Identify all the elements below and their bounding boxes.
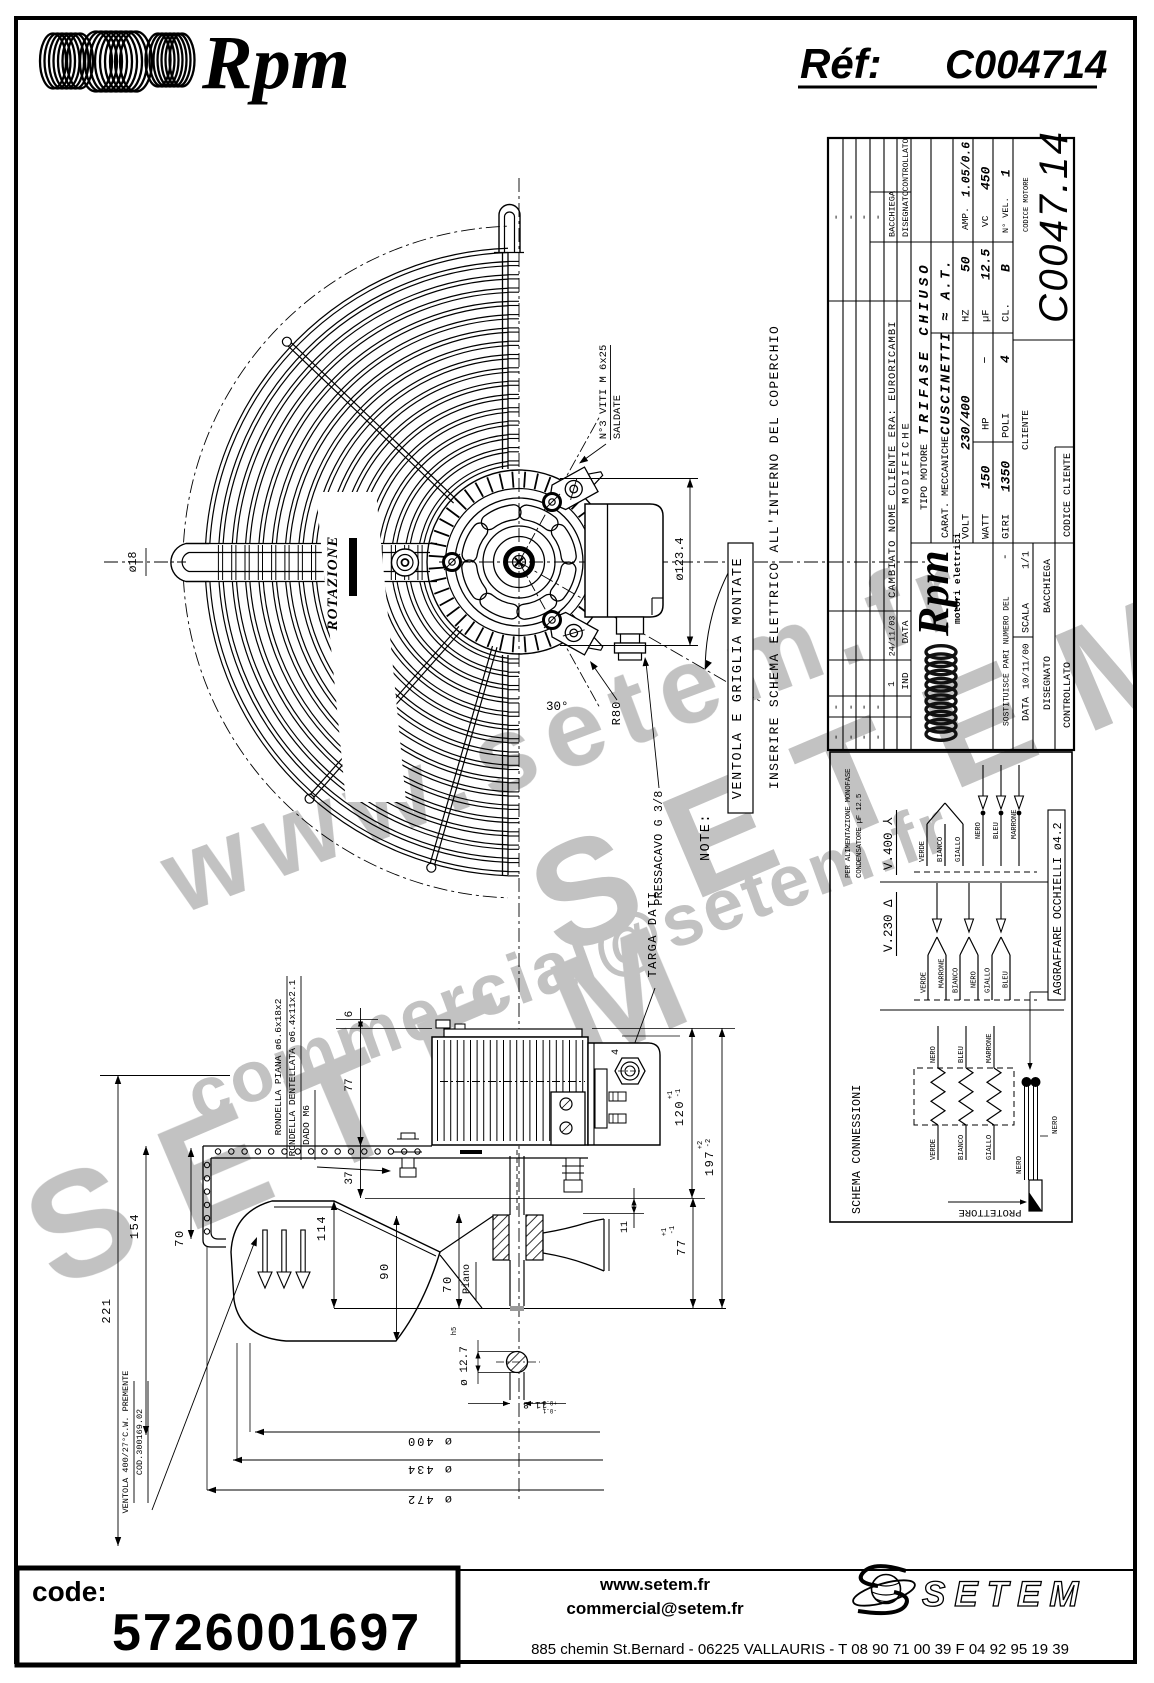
svg-text:1: 1	[999, 169, 1014, 177]
svg-text:30°: 30°	[546, 700, 569, 714]
svg-text:-1: -1	[669, 1226, 677, 1234]
svg-text:GIRI: GIRI	[1001, 514, 1013, 539]
svg-text:NERO: NERO	[1052, 1115, 1060, 1134]
svg-text:NERO: NERO	[1016, 1155, 1024, 1174]
svg-text:VC: VC	[980, 215, 991, 227]
svg-text:NOTE:: NOTE:	[699, 813, 714, 861]
svg-text:NERO: NERO	[930, 1046, 938, 1063]
svg-text:BIANCO: BIANCO	[958, 1135, 966, 1160]
svg-text:MODIFICHE: MODIFICHE	[901, 420, 913, 504]
svg-text:-: -	[873, 704, 885, 711]
svg-text:77: 77	[675, 1238, 689, 1255]
svg-text:BACCHIEGA: BACCHIEGA	[888, 190, 898, 237]
svg-text:CODICE MOTORE: CODICE MOTORE	[1023, 177, 1031, 232]
svg-text:-: -	[1000, 553, 1012, 560]
svg-text:PER ALIMENTAZIONE MONOFASE: PER ALIMENTAZIONE MONOFASE	[845, 768, 853, 878]
svg-text:+2: +2	[697, 1141, 705, 1149]
svg-text:450: 450	[979, 166, 994, 190]
svg-text:-: -	[831, 214, 843, 221]
svg-text:-: -	[831, 704, 843, 711]
svg-text:Réf:: Réf:	[800, 40, 882, 87]
svg-text:11: 11	[620, 1221, 631, 1233]
svg-text:DADO M6: DADO M6	[301, 1105, 312, 1145]
svg-text:BLEU: BLEU	[958, 1046, 966, 1063]
svg-text:Piano: Piano	[461, 1264, 473, 1294]
svg-text:GIALLO: GIALLO	[986, 1135, 994, 1160]
svg-text:IND: IND	[900, 672, 911, 689]
svg-text:-: -	[846, 214, 858, 221]
svg-text:NERO: NERO	[971, 971, 979, 988]
svg-text:221: 221	[100, 1297, 114, 1323]
svg-text:CONTROLLATO: CONTROLLATO	[1063, 662, 1074, 728]
svg-text:WATT: WATT	[981, 514, 993, 539]
svg-text:HZ: HZ	[961, 309, 973, 322]
svg-text:AMP.: AMP.	[960, 207, 971, 230]
svg-text:4: 4	[611, 1049, 622, 1055]
svg-text:commercial@setem.fr: commercial@setem.fr	[566, 1599, 744, 1618]
svg-text:B: B	[999, 264, 1014, 272]
svg-text:1.05/0.6: 1.05/0.6	[961, 142, 974, 197]
svg-text:PROTETTORE: PROTETTORE	[958, 1206, 1021, 1218]
svg-text:CARAT. MECCANICHE: CARAT. MECCANICHE	[941, 436, 952, 538]
svg-text:BIANCO: BIANCO	[937, 837, 945, 862]
svg-text:-0.1: -0.1	[542, 1407, 557, 1414]
svg-text:1/1: 1/1	[1021, 551, 1033, 569]
svg-text:ø 400: ø 400	[406, 1434, 452, 1448]
svg-text:885 chemin St.Bernard - 0622: 885 chemin St.Bernard - 06225 VALLAURIS …	[531, 1641, 1069, 1658]
svg-text:SOSTITUISCE PARI NUMERO DEL: SOSTITUISCE PARI NUMERO DEL	[1003, 596, 1012, 726]
svg-text:code:: code:	[32, 1576, 107, 1607]
svg-text:MARRONE: MARRONE	[939, 959, 947, 988]
svg-text:1: 1	[887, 681, 897, 686]
svg-text:70: 70	[441, 1275, 455, 1292]
svg-text:GIALLO: GIALLO	[985, 968, 993, 993]
svg-text:www.setem.fr: www.setem.fr	[599, 1575, 710, 1594]
svg-text:5726001697: 5726001697	[112, 1604, 421, 1662]
svg-text:ø 434: ø 434	[406, 1462, 452, 1476]
svg-text:CLIENTE: CLIENTE	[1020, 410, 1031, 450]
svg-text:10/11/00: 10/11/00	[1021, 643, 1032, 689]
svg-text:12.5: 12.5	[979, 249, 994, 280]
svg-text:+0.1: +0.1	[542, 1399, 557, 1406]
svg-text:70: 70	[173, 1229, 187, 1246]
svg-text:+1: +1	[661, 1228, 669, 1236]
svg-text:ROTAZIONE: ROTAZIONE	[325, 536, 341, 632]
svg-text:CAMBIATO NOME CLIENTE ERA: EUR: CAMBIATO NOME CLIENTE ERA: EURORICAMBI	[887, 321, 899, 598]
svg-text:-: -	[873, 214, 885, 221]
svg-text:ø 472: ø 472	[406, 1492, 452, 1506]
svg-text:197: 197	[703, 1150, 717, 1176]
svg-text:-: -	[846, 704, 858, 711]
svg-text:SCALA: SCALA	[1022, 603, 1033, 633]
svg-text:-1: -1	[675, 1089, 683, 1097]
svg-text:SCHEMA CONNESSIONI: SCHEMA CONNESSIONI	[851, 1084, 864, 1214]
svg-text:RONDELLA DENTELLATA ø6.4x11x2.: RONDELLA DENTELLATA ø6.4x11x2.1	[287, 979, 298, 1156]
svg-text:–: –	[977, 356, 992, 364]
svg-text:154: 154	[128, 1213, 142, 1239]
svg-text:37: 37	[344, 1171, 356, 1184]
svg-text:ø 12.7: ø 12.7	[459, 1346, 471, 1386]
svg-text:CONTROLLATO: CONTROLLATO	[902, 138, 911, 191]
svg-text:24/11/03: 24/11/03	[888, 616, 898, 657]
svg-text:V.400 ⅄: V.400 ⅄	[882, 817, 896, 870]
svg-text:V.230 Δ: V.230 Δ	[882, 899, 896, 952]
svg-text:-2: -2	[705, 1139, 713, 1147]
svg-text:PRESSACAVO G 3/8: PRESSACAVO G 3/8	[653, 790, 666, 905]
svg-text:RONDELLA PIANA ø6.6x18x2: RONDELLA PIANA ø6.6x18x2	[273, 998, 284, 1135]
svg-text:POLI: POLI	[1001, 413, 1013, 438]
svg-text:motori elettrici: motori elettrici	[952, 532, 963, 624]
svg-text:GIALLO: GIALLO	[955, 837, 963, 862]
svg-text:-: -	[859, 704, 871, 711]
svg-text:TRIFASE CHIUSO: TRIFASE CHIUSO	[917, 261, 933, 435]
svg-text:4: 4	[998, 355, 1013, 363]
svg-text:CL.: CL.	[1001, 303, 1013, 322]
svg-text:-: -	[831, 734, 843, 741]
svg-text:Rpm: Rpm	[201, 21, 350, 105]
svg-text:VERDE: VERDE	[921, 972, 929, 993]
svg-text:C004714: C004714	[945, 43, 1107, 87]
svg-text:MARRONE: MARRONE	[1011, 810, 1019, 839]
svg-text:AGGRAFFARE OCCHIELLI ø4.2: AGGRAFFARE OCCHIELLI ø4.2	[1052, 822, 1065, 995]
svg-text:VERDE: VERDE	[919, 841, 927, 862]
svg-text:TARGA DATI: TARGA DATI	[646, 890, 660, 977]
svg-text:BLEU: BLEU	[1003, 971, 1011, 988]
svg-text:VERDE: VERDE	[930, 1139, 938, 1160]
svg-text:120: 120	[673, 1100, 687, 1126]
svg-text:N°3 VITI M 6x25: N°3 VITI M 6x25	[598, 345, 610, 440]
svg-text:MARRONE: MARRONE	[986, 1034, 994, 1063]
svg-text:SALDATE: SALDATE	[612, 395, 624, 439]
svg-text:NERO: NERO	[975, 822, 983, 839]
svg-text:TIPO MOTORE: TIPO MOTORE	[920, 444, 931, 510]
svg-text:90: 90	[378, 1262, 392, 1279]
svg-text:COD.300169.02: COD.300169.02	[135, 1409, 145, 1475]
svg-text:-: -	[859, 734, 871, 741]
svg-text:CONDENSATORE µF 12.5: CONDENSATORE µF 12.5	[856, 793, 864, 878]
svg-text:BACCHIEGA: BACCHIEGA	[1043, 559, 1054, 613]
svg-text:ø18: ø18	[127, 552, 140, 573]
svg-text:µF: µF	[981, 309, 993, 322]
svg-text:-: -	[859, 214, 871, 221]
svg-text:DISEGNATO: DISEGNATO	[901, 191, 911, 237]
svg-text:230/400: 230/400	[959, 395, 974, 450]
svg-text:150: 150	[979, 465, 994, 489]
svg-text:HP: HP	[981, 417, 993, 430]
svg-text:VENTOLA 400/27°C.W. PREMENTE: VENTOLA 400/27°C.W. PREMENTE	[121, 1371, 131, 1514]
svg-text:114: 114	[315, 1215, 329, 1241]
svg-text:1350: 1350	[999, 461, 1014, 492]
svg-text:ø123.4: ø123.4	[673, 537, 687, 580]
svg-text:C0047.14: C0047.14	[1032, 130, 1076, 323]
svg-text:BIANCO: BIANCO	[953, 968, 961, 993]
svg-text:6: 6	[344, 1011, 356, 1018]
svg-text:h5: h5	[451, 1327, 459, 1335]
svg-text:Rpm: Rpm	[909, 550, 958, 637]
svg-text:-: -	[873, 734, 885, 741]
svg-text:DATA: DATA	[1022, 697, 1033, 721]
svg-text:N° VEL.: N° VEL.	[1001, 197, 1011, 233]
svg-text:77: 77	[344, 1078, 356, 1091]
svg-text:DISEGNATO: DISEGNATO	[1043, 656, 1054, 710]
svg-text:CODICE CLIENTE: CODICE CLIENTE	[1063, 453, 1074, 537]
svg-text:VENTOLA E GRIGLIA MONTATE: VENTOLA E GRIGLIA MONTATE	[731, 557, 746, 800]
svg-text:+1: +1	[667, 1091, 675, 1099]
svg-text:50: 50	[959, 256, 974, 272]
svg-text:SETEM: SETEM	[922, 1575, 1088, 1614]
svg-text:INSERIRE SCHEMA ELETTRICO ALL': INSERIRE SCHEMA ELETTRICO ALL'INTERNO DE…	[767, 325, 782, 789]
svg-text:BLEU: BLEU	[993, 822, 1001, 839]
svg-text:CUSCINETTI ≈ A.T.: CUSCINETTI ≈ A.T.	[939, 258, 955, 435]
svg-text:-: -	[846, 734, 858, 741]
svg-text:R80: R80	[610, 701, 624, 726]
